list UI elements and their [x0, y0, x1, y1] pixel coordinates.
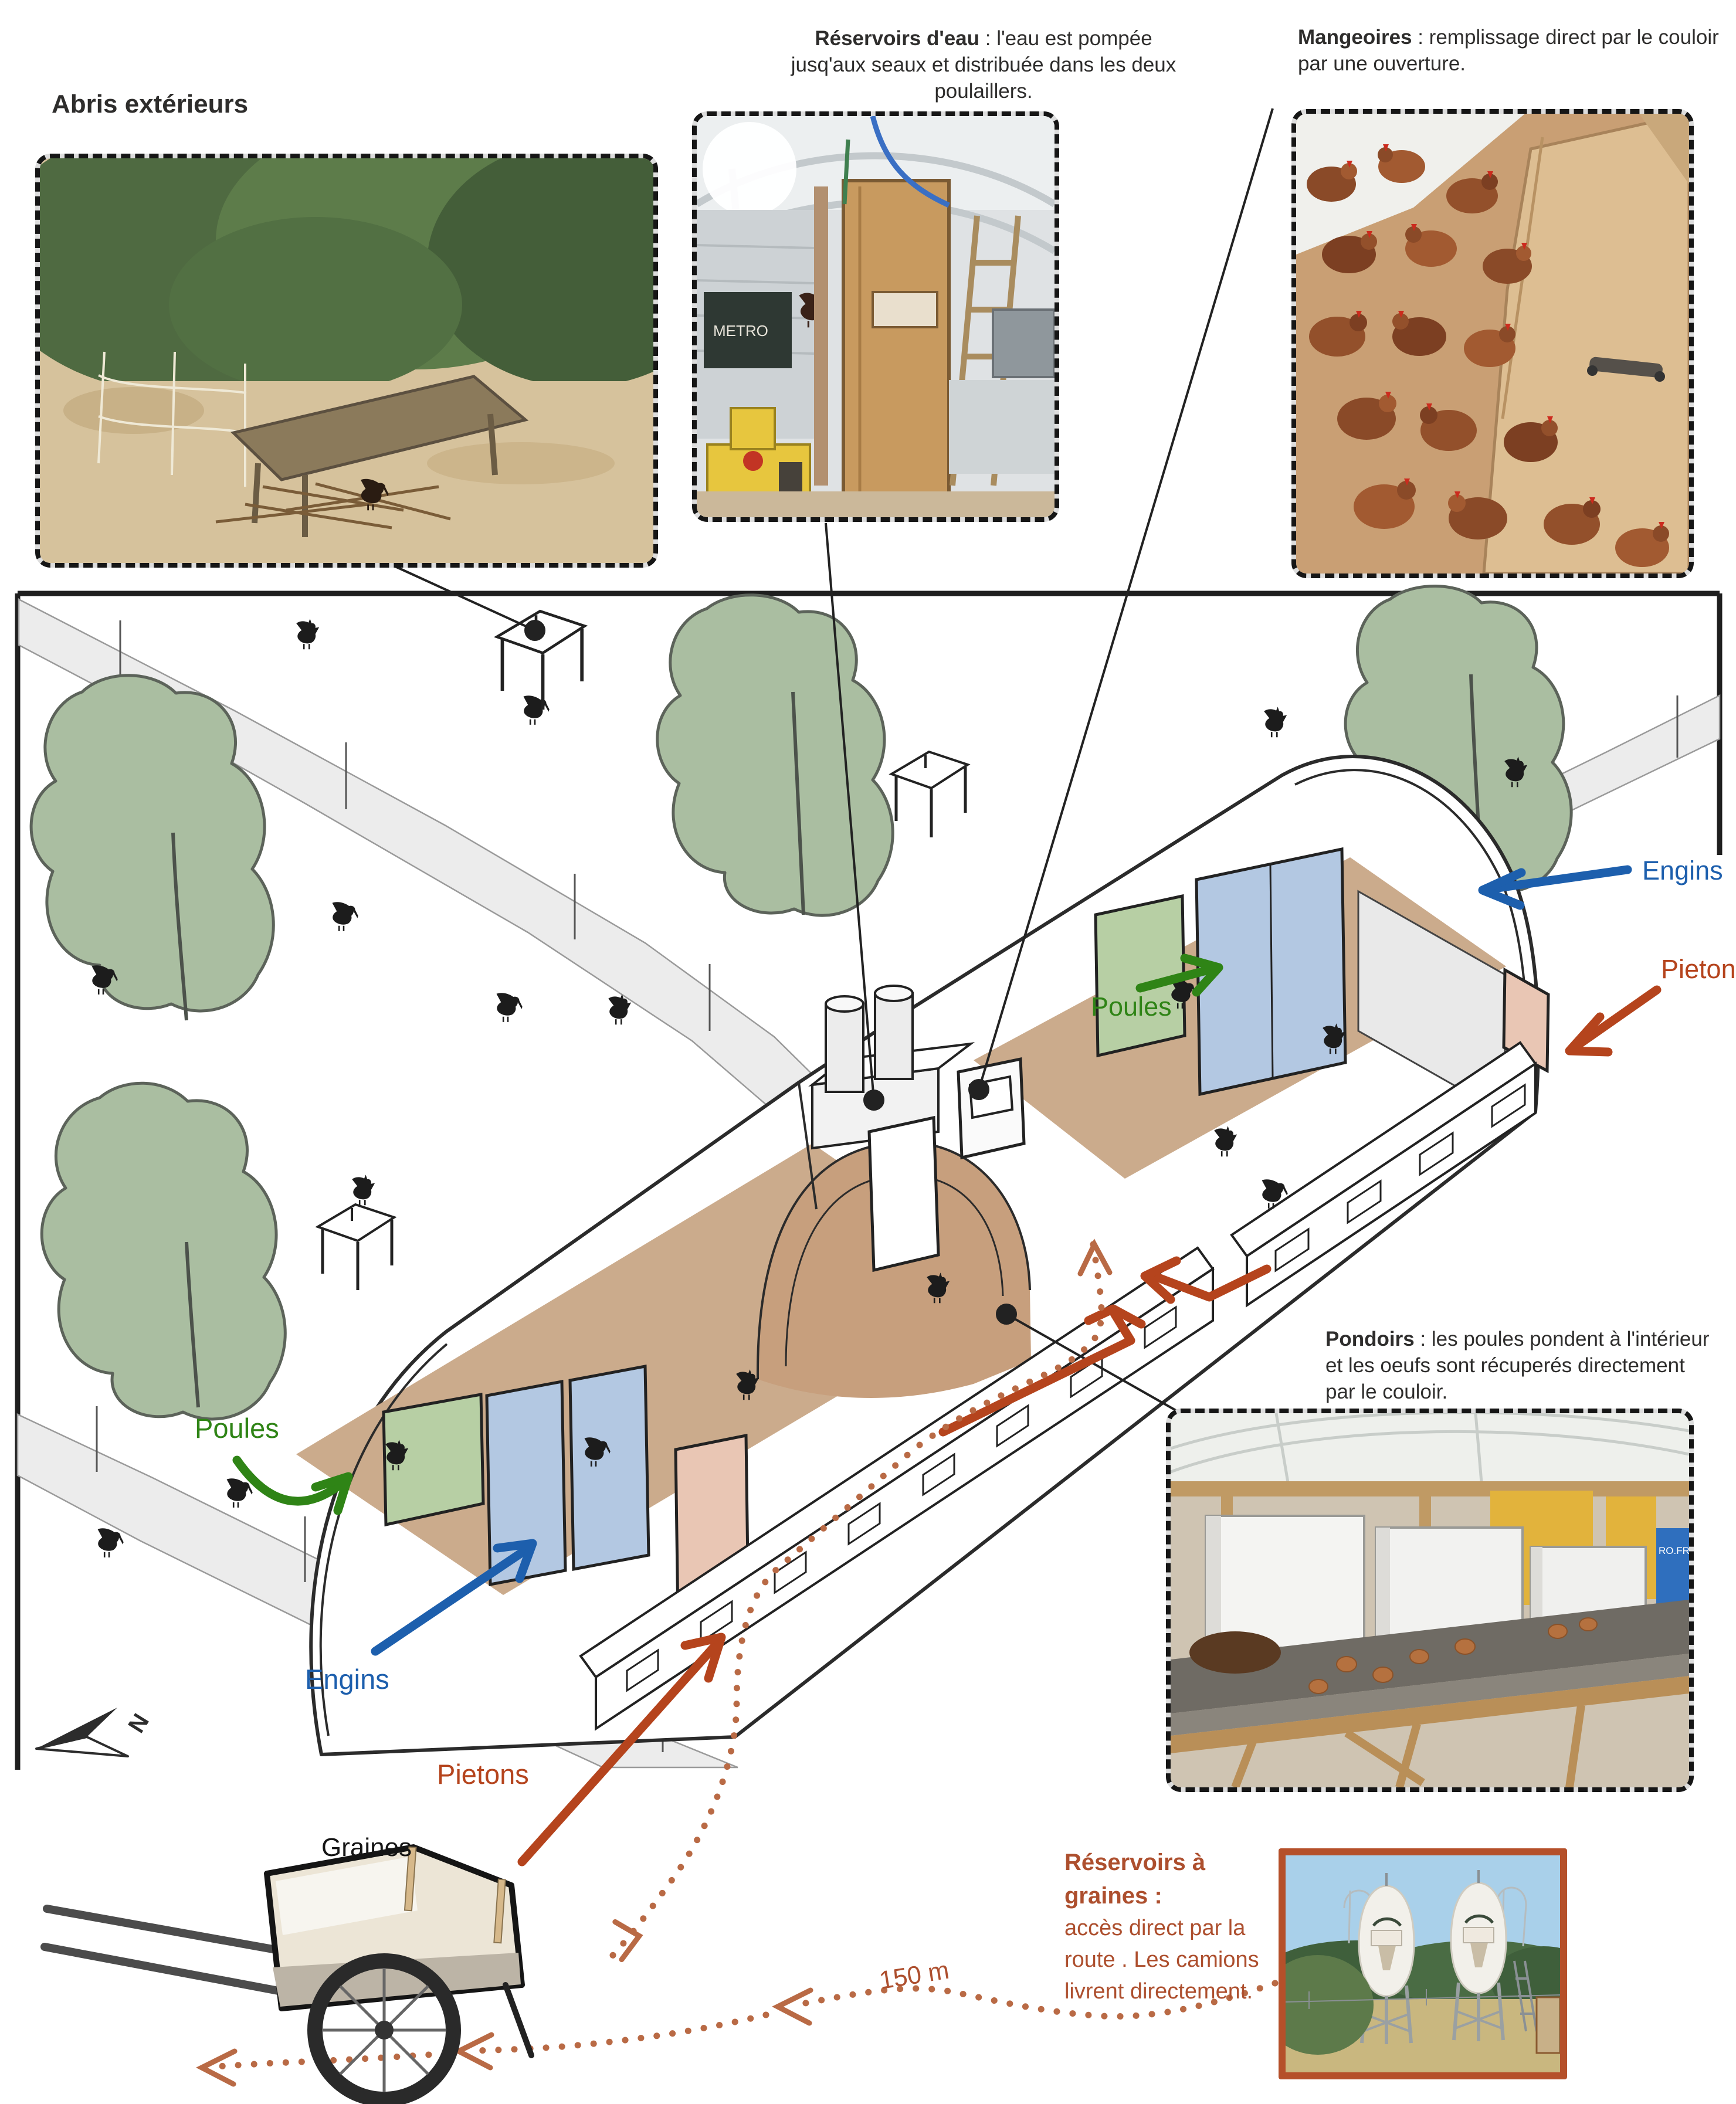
caption-eau-head: Réservoirs d'eau — [815, 27, 979, 50]
photo-silos — [1279, 1848, 1567, 2079]
photo-mangeoires — [1291, 109, 1694, 578]
shelter-icon-2 — [891, 752, 968, 837]
caption-pondoirs-head: Pondoirs — [1325, 1328, 1415, 1350]
shelter-icon-3 — [318, 1204, 394, 1290]
north-letter: N — [123, 1709, 154, 1738]
photo-abris-exterieurs — [35, 154, 658, 568]
metro-sign-text: METRO — [713, 322, 768, 340]
photo-pondoirs-art: RO.FR — [1171, 1413, 1689, 1787]
water-tank-photo — [993, 310, 1055, 377]
engins-label-right: Engins — [1642, 856, 1723, 885]
poules-label-left: Poules — [195, 1413, 279, 1444]
photo-abris-art — [40, 158, 653, 563]
poules-label-center: Poules — [1091, 992, 1172, 1022]
caption-graines-line3: livrent directement. — [1064, 1979, 1253, 2004]
caption-abris-text: Abris extérieurs — [52, 90, 248, 118]
distance-label: 150 m — [877, 1956, 951, 1995]
photo-eau-art: METRO — [697, 116, 1055, 517]
photo-silos-art — [1286, 1855, 1560, 2072]
caption-graines-line2: route . Les camions — [1064, 1947, 1259, 1972]
pietons-label-bottom: Pietons — [437, 1759, 529, 1790]
north-arrow: N — [36, 1708, 154, 1756]
caption-cart-text: Graines — [321, 1833, 412, 1862]
caption-graines-head: Réservoirs à graines : — [1064, 1850, 1205, 1909]
caption-graines-line1: accès direct par la — [1064, 1916, 1245, 1940]
photo-mangeoires-art — [1296, 114, 1689, 573]
caption-abris: Abris extérieurs — [52, 88, 248, 121]
caption-mangeoires: Mangeoires : remplissage direct par le c… — [1298, 25, 1732, 77]
caption-cart: Graines — [321, 1833, 412, 1862]
caption-eau: Réservoirs d'eau : l'eau est pompée jusq… — [775, 26, 1192, 104]
photo-pondoirs: RO.FR — [1166, 1409, 1694, 1792]
infographic-page: Poules Poules Engins Engins Pietons Piet… — [0, 0, 1736, 2104]
caption-pondoirs: Pondoirs : les poules pondent à l'intéri… — [1325, 1326, 1713, 1405]
photo-reservoirs-eau: METRO — [692, 111, 1059, 522]
caption-mangeoires-head: Mangeoires — [1298, 26, 1412, 49]
engins-label-left: Engins — [305, 1664, 389, 1695]
shed — [1537, 1997, 1560, 2053]
caption-graines: Réservoirs à graines : accès direct par … — [1064, 1846, 1270, 2008]
sitting-hen — [1189, 1631, 1281, 1674]
machine-door-near-right — [570, 1366, 649, 1569]
blue-box-text: RO.FR — [1659, 1545, 1689, 1556]
pietons-label-right: Pietons — [1661, 954, 1736, 984]
